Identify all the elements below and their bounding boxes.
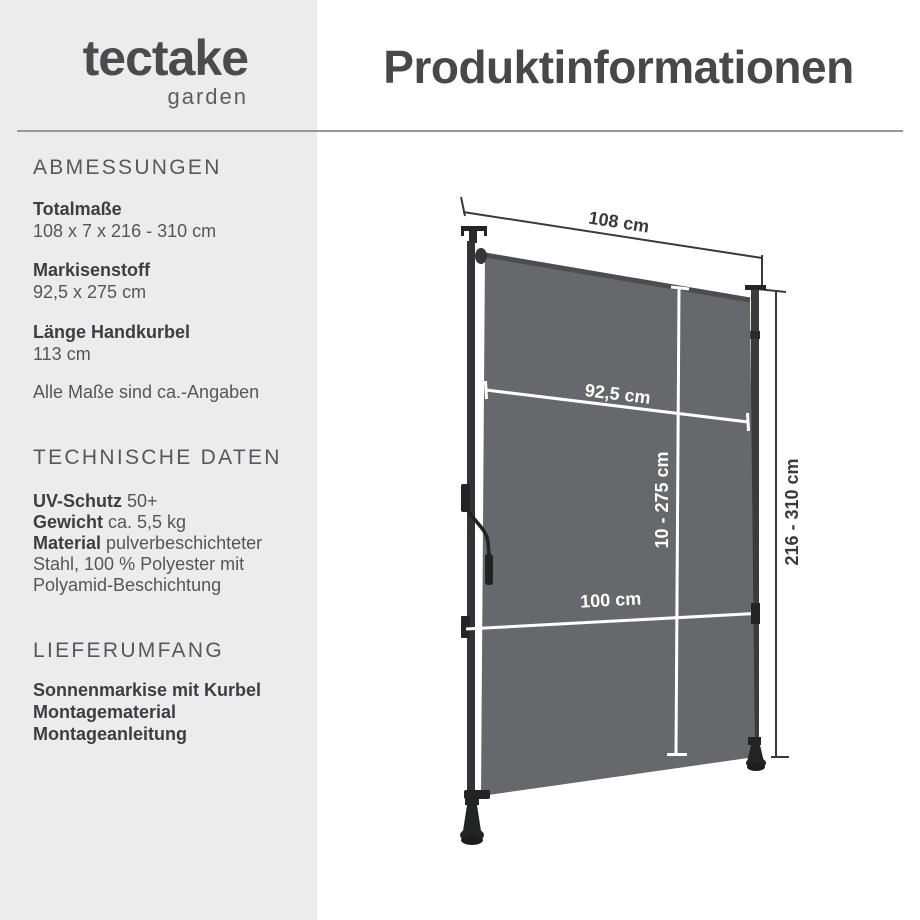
right-pole-foot [746,737,766,771]
extension-range-label: 10 - 275 cm [652,451,672,548]
crank-handle-grip [485,554,493,585]
product-info-page: tectake garden Produktinformationen ABME… [0,0,920,920]
roller-end-cap [475,248,487,264]
pole-distance-label: 100 cm [580,588,642,611]
awning-fabric [481,253,755,796]
crank-bracket [461,484,470,512]
awning-diagram: 108 cm 216 - 310 cm 92,5 cm 10 - 275 cm … [0,0,920,920]
height-range-label: 216 - 310 cm [782,458,802,565]
